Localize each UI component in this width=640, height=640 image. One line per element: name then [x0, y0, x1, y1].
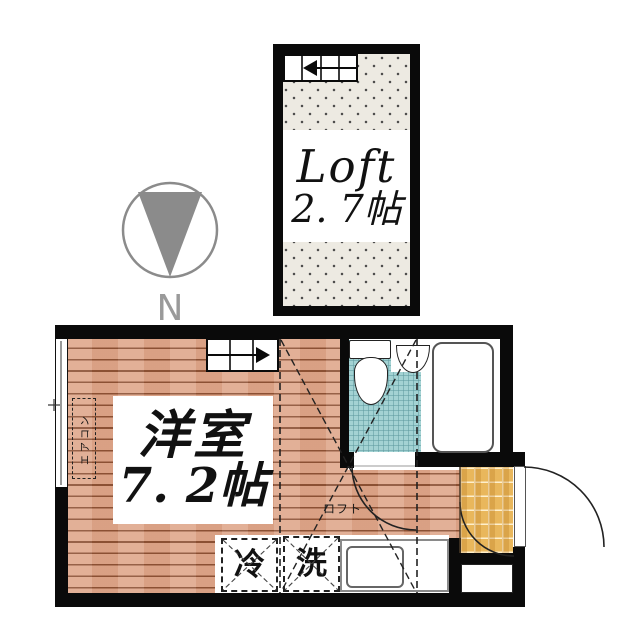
- room-label: 洋室 7. 2帖: [113, 396, 273, 524]
- wall-right-bathroom: [500, 325, 513, 455]
- air-conditioner-label: エアコン: [77, 413, 92, 465]
- wall-bathroom-door-stub: [340, 452, 354, 468]
- room-name-label: 洋室: [138, 410, 248, 462]
- compass-needle-icon: [138, 192, 202, 277]
- entry-door-leaf: [514, 466, 526, 547]
- entry-genkan-tile: [460, 466, 513, 553]
- entry-step: [460, 553, 513, 564]
- refrigerator-box: 冷: [221, 538, 278, 592]
- window-left-wall: [55, 339, 68, 487]
- loft-size-label: 2. 7帖: [291, 190, 402, 229]
- kitchen-sink-icon: [346, 546, 404, 588]
- wall-entry-divider: [449, 538, 461, 605]
- bathtub-icon: [432, 342, 494, 453]
- wall-entry-right: [513, 547, 525, 607]
- wall-left-lower: [55, 486, 68, 607]
- loft-room: Loft 2. 7帖: [273, 44, 420, 316]
- room-ladder-icon: [206, 338, 279, 372]
- loft-label: Loft: [297, 144, 397, 190]
- north-compass-icon: N: [115, 180, 225, 330]
- entry-door-arc: [524, 467, 604, 547]
- washing-machine-label: 洗: [296, 549, 327, 580]
- loft-label-band: Loft 2. 7帖: [283, 130, 410, 242]
- refrigerator-label: 冷: [234, 550, 265, 581]
- loft-ladder-icon: [283, 54, 358, 82]
- wall-top: [55, 325, 513, 339]
- floorplan-canvas: Loft 2. 7帖 N 冷 洗: [0, 0, 640, 640]
- room-size-label: 7. 2帖: [119, 462, 267, 510]
- washing-machine-box: 洗: [283, 536, 340, 592]
- wall-bathroom-left: [340, 339, 349, 452]
- shoe-cabinet: [461, 564, 513, 593]
- air-conditioner-box: エアコン: [72, 398, 96, 479]
- bathroom-door-opening: [354, 452, 415, 467]
- wall-bathroom-bottom: [415, 452, 525, 467]
- loft-outline-label: ロフト: [323, 500, 362, 517]
- compass-north-label: N: [157, 288, 184, 329]
